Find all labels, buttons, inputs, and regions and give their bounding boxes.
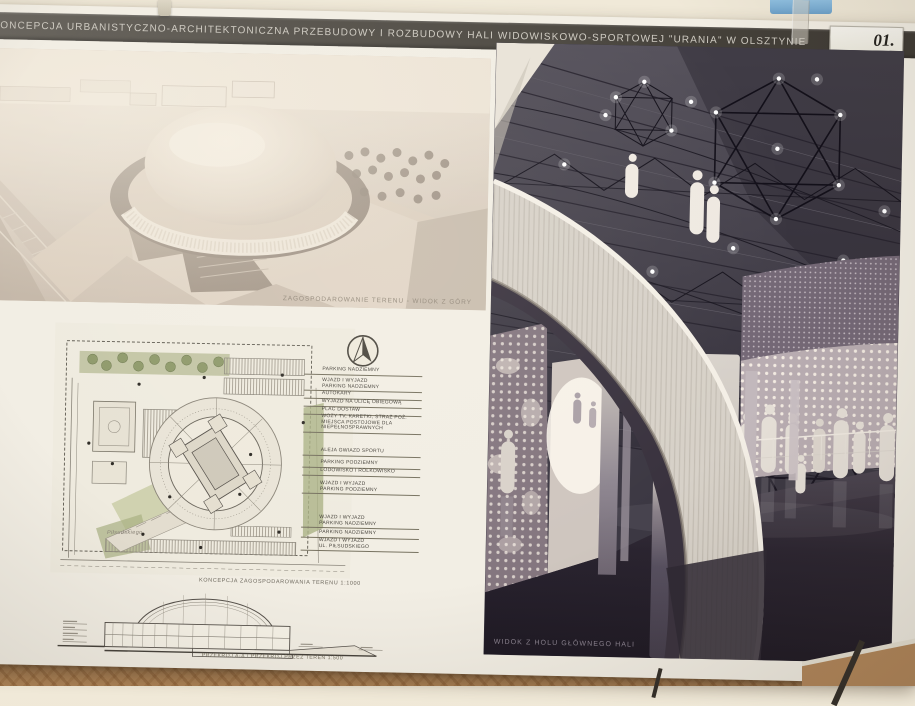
section-drawing — [42, 583, 395, 662]
board-title: KONCEPCJA URBANISTYCZNO-ARCHITEKTONICZNA… — [0, 20, 806, 48]
board-number: 01. — [873, 31, 895, 51]
plan-annotation: WJAZD I WYJAZD PARKING PODZIEMNY — [302, 481, 420, 496]
perforated-wall-left — [485, 321, 553, 593]
section-panel: PRZEKRÓJ A-A / PRZEKRÓJ PRZEZ TEREN 1:50… — [42, 583, 396, 670]
site-plan-panel: PARKING NADZIEMNY WJAZD I WYJAZD PARKING… — [50, 322, 428, 598]
board-clip — [791, 0, 810, 44]
board-clip — [158, 0, 171, 16]
parking-area — [224, 358, 304, 376]
plan-annotation: WJAZD I WYJAZD PARKING NADZIEMNY — [301, 515, 419, 530]
north-arrow-icon — [342, 330, 383, 371]
plan-annotation: WOZY TV, KARETKI, STRAŻ POŻ. MIEJSCA POS… — [303, 414, 421, 435]
aerial-render-panel: ZAGOSPODAROWANIE TERENU - WIDOK Z GÓRY — [0, 48, 491, 311]
street-label: Piłsudskiego — [107, 530, 143, 536]
aerial-render-drawing — [0, 48, 491, 311]
interior-render-panel: WIDOK Z HOLU GŁÓWNEGO HALI — [483, 43, 904, 663]
interior-render-drawing — [483, 43, 904, 663]
presentation-board: KONCEPCJA URBANISTYCZNO-ARCHITEKTONICZNA… — [0, 4, 915, 683]
plan-annotation: WJAZD I WYJAZD UL. PIŁSUDSKIEGO — [301, 538, 419, 553]
